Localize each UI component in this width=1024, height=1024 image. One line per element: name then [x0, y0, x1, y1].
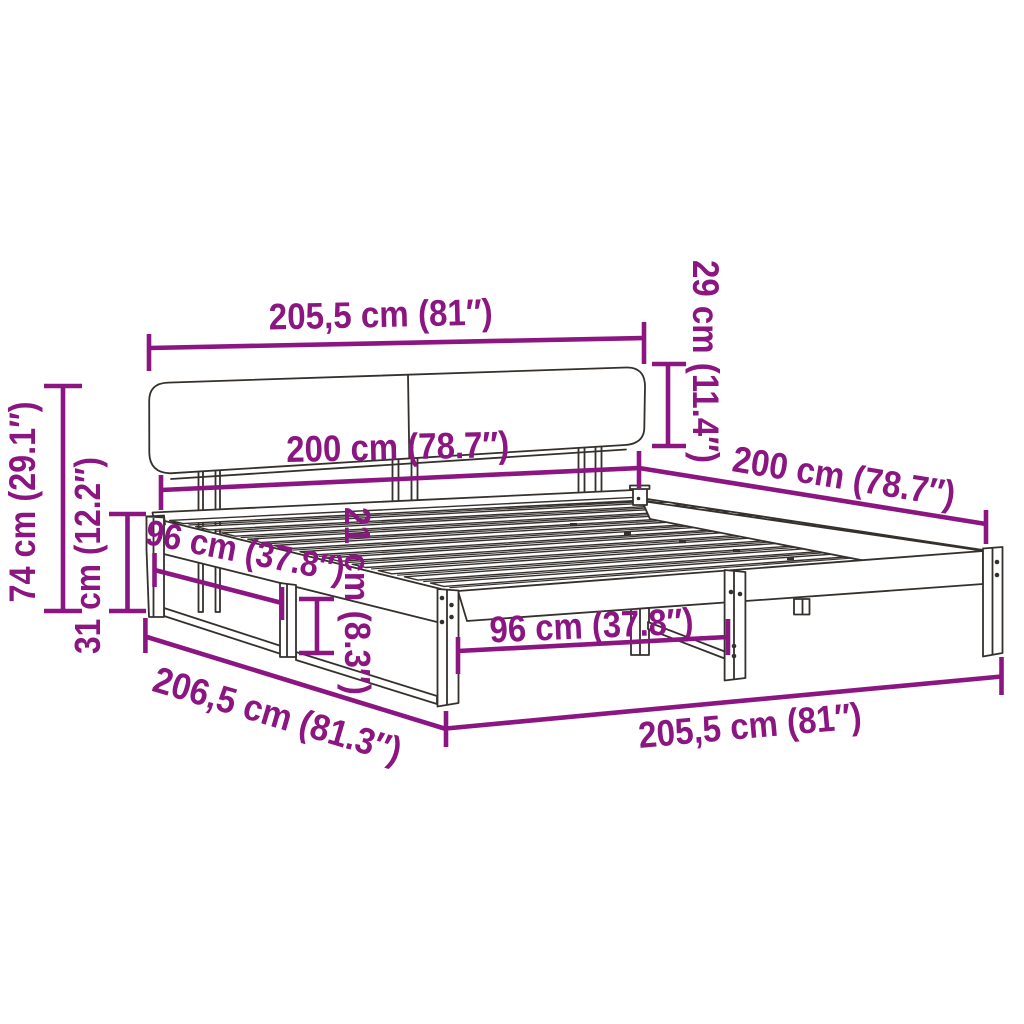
svg-text:205,5 cm (81″): 205,5 cm (81″)	[268, 291, 493, 337]
svg-text:200 cm (78.7″): 200 cm (78.7″)	[286, 424, 510, 470]
svg-text:29 cm (11.4″): 29 cm (11.4″)	[685, 260, 726, 463]
svg-text:31 cm (12.2″): 31 cm (12.2″)	[67, 457, 108, 654]
svg-text:21 cm (8.3″): 21 cm (8.3″)	[337, 507, 378, 695]
svg-text:74 cm (29.1″): 74 cm (29.1″)	[2, 402, 43, 603]
